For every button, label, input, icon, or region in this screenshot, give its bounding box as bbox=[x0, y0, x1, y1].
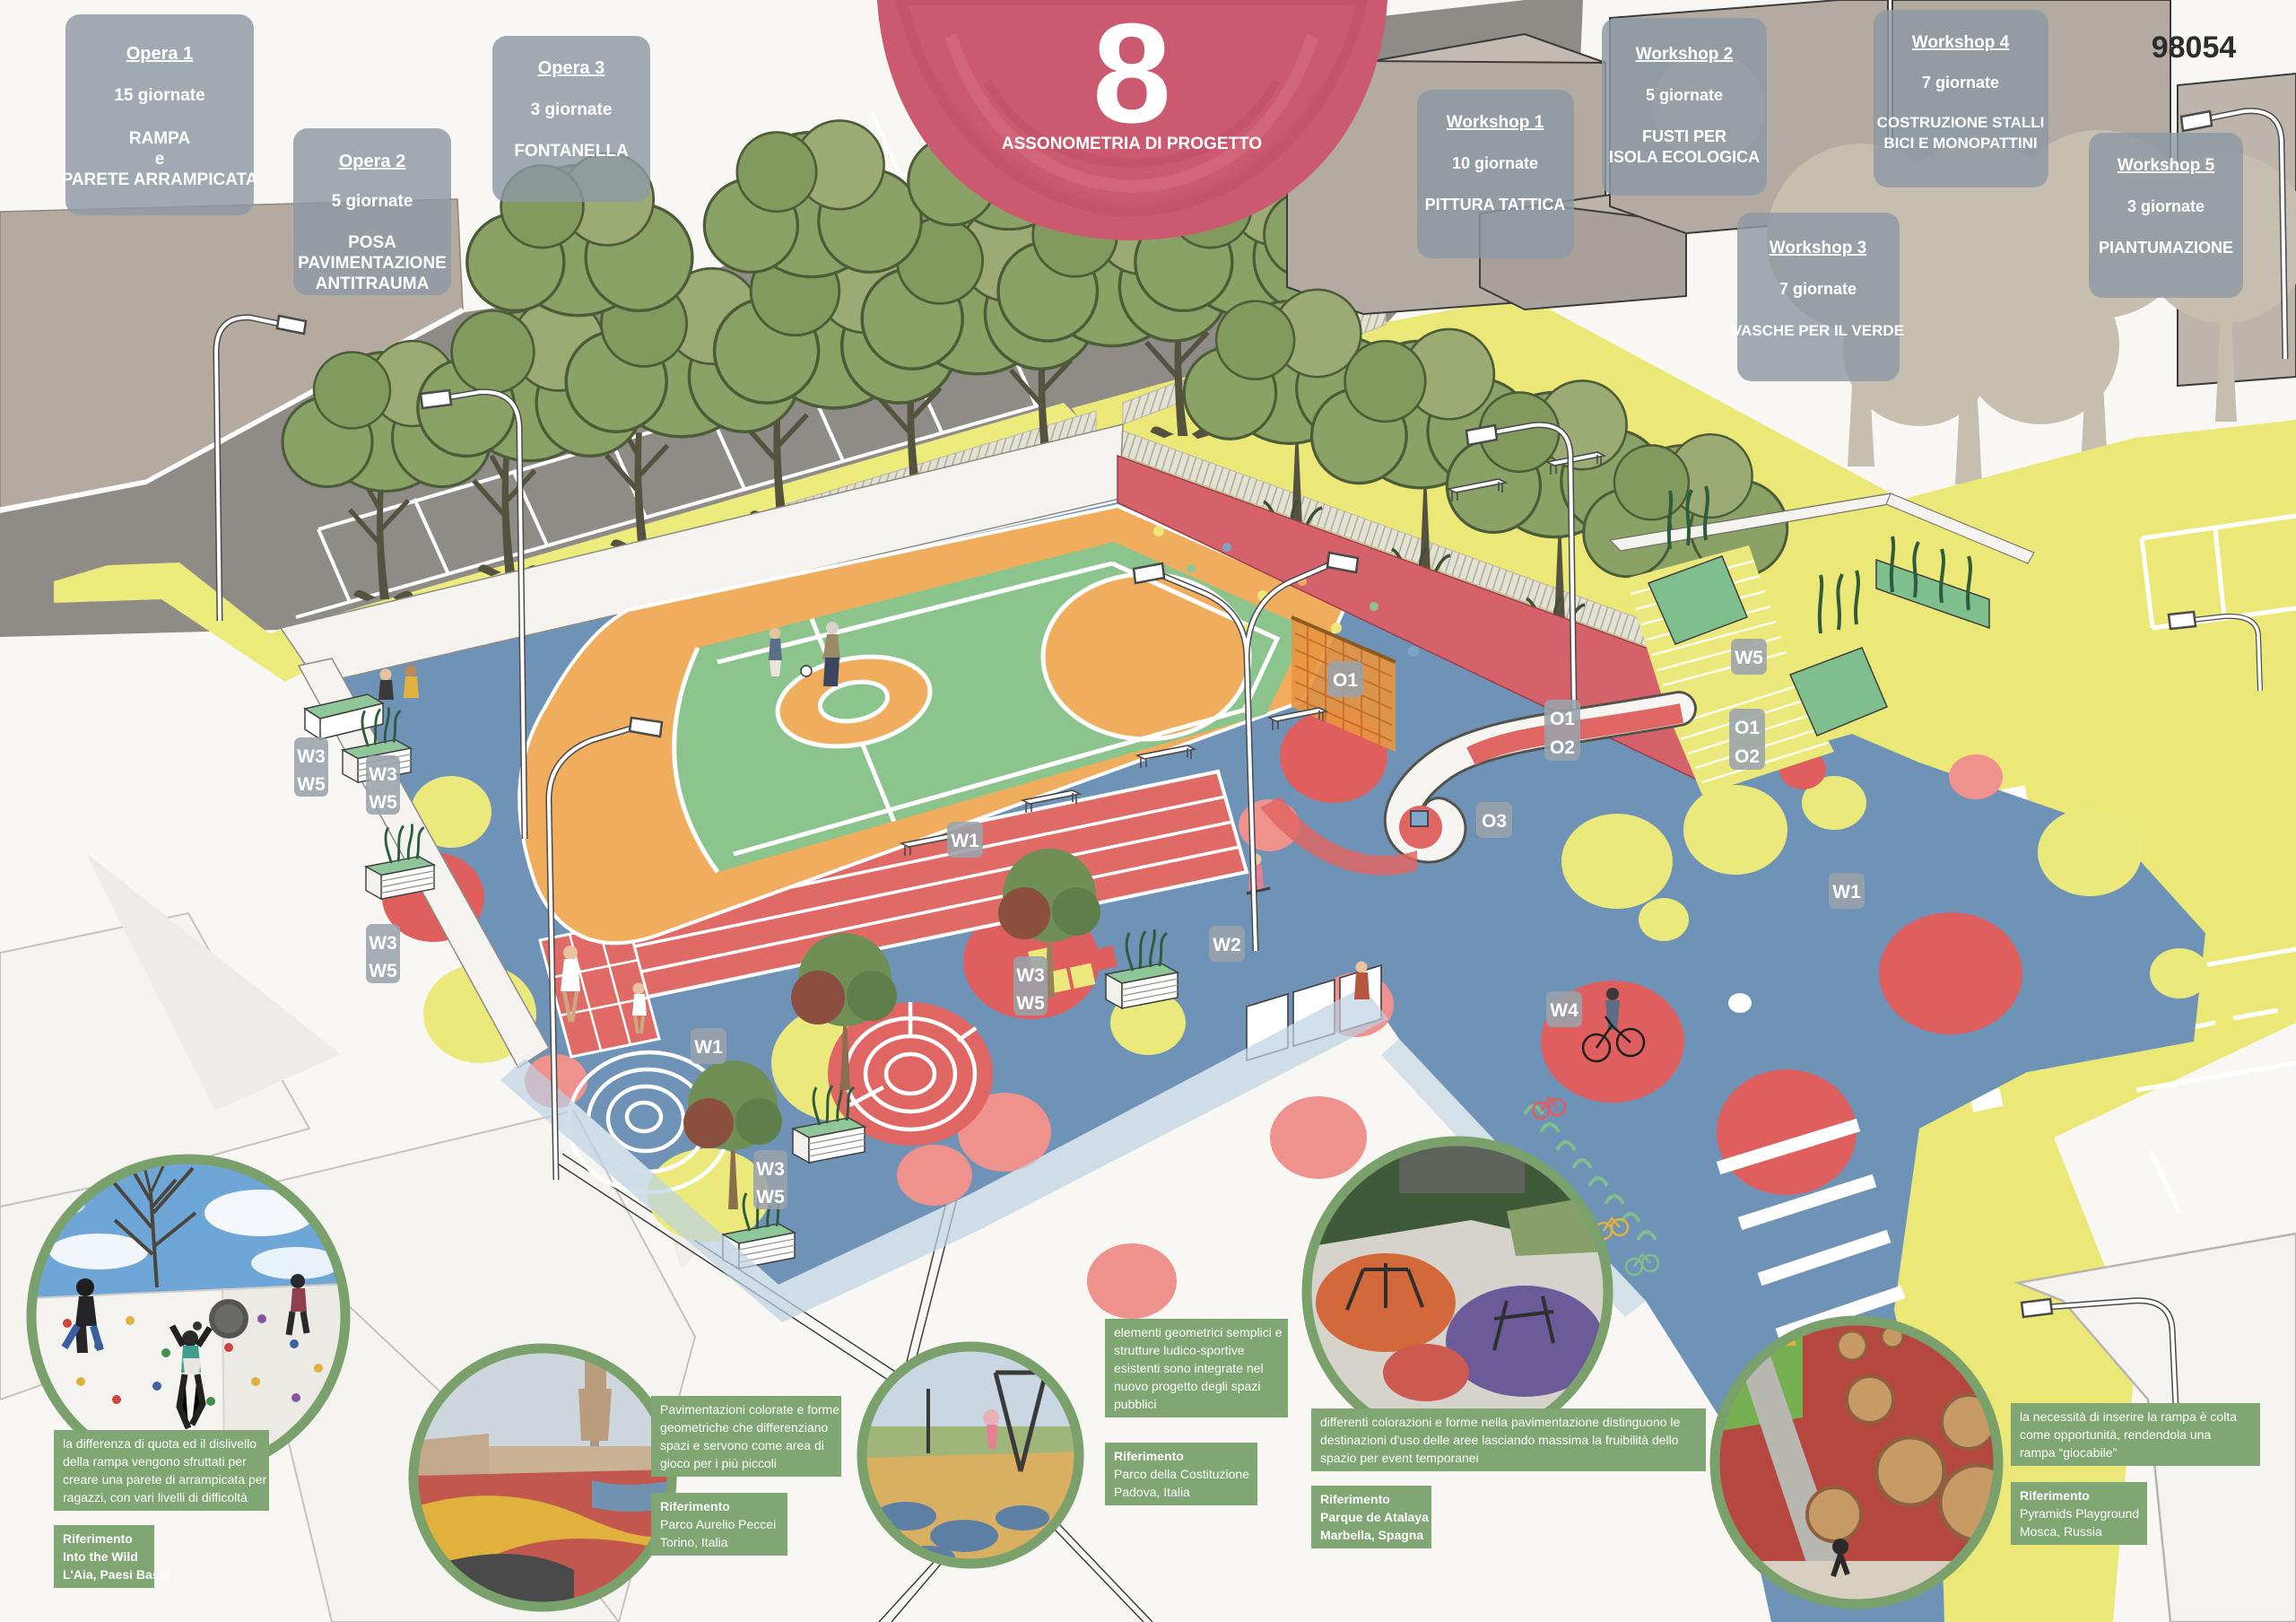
svg-text:W5: W5 bbox=[369, 792, 397, 813]
svg-text:5 giornate: 5 giornate bbox=[1646, 86, 1723, 104]
svg-text:3 giornate: 3 giornate bbox=[531, 100, 613, 119]
svg-text:Pavimentazioni colorate e form: Pavimentazioni colorate e forme bbox=[660, 1402, 839, 1417]
svg-text:W4: W4 bbox=[1550, 1000, 1578, 1021]
svg-text:rampa “giocabile”: rampa “giocabile” bbox=[2020, 1445, 2117, 1460]
svg-text:della rampa vengono sfruttati: della rampa vengono sfruttati per bbox=[63, 1454, 247, 1469]
svg-text:ISOLA ECOLOGICA: ISOLA ECOLOGICA bbox=[1609, 148, 1760, 166]
svg-text:pubblici: pubblici bbox=[1114, 1397, 1156, 1411]
svg-text:spazio per event temporanei: spazio per event temporanei bbox=[1320, 1451, 1479, 1465]
svg-text:O1: O1 bbox=[1735, 718, 1760, 738]
svg-text:Pyramids Playground: Pyramids Playground bbox=[2020, 1506, 2139, 1521]
svg-text:O3: O3 bbox=[1482, 811, 1507, 832]
svg-text:Workshop 4: Workshop 4 bbox=[1912, 33, 2010, 52]
svg-text:nuovo progetto degli spazi: nuovo progetto degli spazi bbox=[1114, 1379, 1260, 1393]
svg-text:Parco Aurelio Peccei: Parco Aurelio Peccei bbox=[660, 1517, 776, 1531]
svg-text:geometriche che differenziano: geometriche che differenziano bbox=[660, 1420, 829, 1435]
svg-text:Parque de Atalaya: Parque de Atalaya bbox=[1320, 1510, 1429, 1524]
svg-text:W1: W1 bbox=[951, 831, 979, 851]
svg-text:Opera 3: Opera 3 bbox=[538, 58, 604, 78]
svg-text:O2: O2 bbox=[1550, 737, 1575, 758]
svg-text:W1: W1 bbox=[1832, 882, 1861, 903]
svg-text:RAMPA: RAMPA bbox=[129, 129, 191, 148]
svg-text:ragazzi, con vari livelli di d: ragazzi, con vari livelli di difficoltà bbox=[63, 1490, 248, 1504]
svg-text:esistenti sono integrate nel: esistenti sono integrate nel bbox=[1114, 1361, 1264, 1375]
svg-text:come opportunità, rendendola u: come opportunità, rendendola una bbox=[2020, 1427, 2211, 1442]
svg-text:W5: W5 bbox=[1016, 993, 1045, 1014]
svg-text:la necessità di inserire la ra: la necessità di inserire la rampa è colt… bbox=[2020, 1409, 2237, 1424]
svg-text:Workshop 2: Workshop 2 bbox=[1636, 45, 1733, 64]
svg-text:98054: 98054 bbox=[2152, 31, 2237, 65]
svg-text:O1: O1 bbox=[1333, 670, 1358, 691]
svg-text:W5: W5 bbox=[1735, 648, 1763, 668]
svg-text:PIANTUMAZIONE: PIANTUMAZIONE bbox=[2099, 239, 2233, 257]
svg-text:elementi geometrici semplici e: elementi geometrici semplici e bbox=[1114, 1325, 1283, 1339]
svg-text:Riferimento: Riferimento bbox=[1320, 1492, 1390, 1506]
svg-text:L'Aia, Paesi Bassi: L'Aia, Paesi Bassi bbox=[63, 1567, 170, 1582]
svg-text:W3: W3 bbox=[297, 746, 326, 767]
svg-text:8: 8 bbox=[1092, 0, 1171, 153]
svg-text:Riferimento: Riferimento bbox=[63, 1531, 133, 1546]
svg-text:W5: W5 bbox=[297, 774, 326, 795]
svg-text:Parco della Costituzione: Parco della Costituzione bbox=[1114, 1467, 1249, 1481]
svg-text:W5: W5 bbox=[369, 961, 397, 981]
svg-text:Workshop 3: Workshop 3 bbox=[1770, 239, 1866, 257]
svg-text:15 giornate: 15 giornate bbox=[114, 86, 204, 105]
svg-text:W3: W3 bbox=[369, 933, 397, 954]
svg-text:W3: W3 bbox=[756, 1159, 785, 1180]
svg-text:e: e bbox=[155, 150, 165, 169]
svg-text:W5: W5 bbox=[756, 1187, 785, 1208]
svg-text:creare una parete di arrampica: creare una parete di arrampicata per bbox=[63, 1472, 267, 1487]
svg-text:Riferimento: Riferimento bbox=[2020, 1488, 2090, 1503]
svg-text:Riferimento: Riferimento bbox=[660, 1499, 730, 1513]
svg-text:FUSTI PER: FUSTI PER bbox=[1642, 127, 1726, 145]
svg-text:7 giornate: 7 giornate bbox=[1779, 280, 1857, 298]
svg-text:POSA: POSA bbox=[348, 233, 396, 252]
svg-text:W3: W3 bbox=[1016, 965, 1045, 986]
svg-text:FONTANELLA: FONTANELLA bbox=[514, 142, 629, 161]
svg-text:W3: W3 bbox=[369, 764, 397, 785]
svg-text:5 giornate: 5 giornate bbox=[332, 192, 413, 211]
svg-text:Opera 1: Opera 1 bbox=[126, 44, 193, 64]
svg-text:7 giornate: 7 giornate bbox=[1922, 74, 1999, 92]
svg-text:differenti colorazioni e forme: differenti colorazioni e forme nella pav… bbox=[1320, 1415, 1681, 1429]
svg-text:Opera 2: Opera 2 bbox=[339, 152, 405, 171]
svg-text:PITTURA TATTICA: PITTURA TATTICA bbox=[1425, 196, 1566, 214]
svg-text:W2: W2 bbox=[1213, 935, 1241, 955]
svg-text:Workshop 1: Workshop 1 bbox=[1447, 113, 1544, 132]
svg-text:Torino, Italia: Torino, Italia bbox=[660, 1535, 728, 1549]
svg-text:O2: O2 bbox=[1735, 746, 1760, 767]
svg-text:destinazioni d'uso delle aree: destinazioni d'uso delle aree lasciando … bbox=[1320, 1433, 1679, 1447]
svg-text:W1: W1 bbox=[694, 1037, 723, 1058]
svg-text:PAVIMENTAZIONE: PAVIMENTAZIONE bbox=[298, 254, 447, 273]
svg-text:BICI E MONOPATTINI: BICI E MONOPATTINI bbox=[1883, 135, 2037, 152]
svg-text:3 giornate: 3 giornate bbox=[2127, 197, 2205, 215]
svg-text:ASSONOMETRIA DI PROGETTO: ASSONOMETRIA DI PROGETTO bbox=[1002, 135, 1262, 153]
svg-text:ANTITRAUMA: ANTITRAUMA bbox=[316, 275, 430, 293]
svg-text:gioco per i più piccoli: gioco per i più piccoli bbox=[660, 1456, 777, 1470]
svg-text:Marbella, Spagna: Marbella, Spagna bbox=[1320, 1528, 1423, 1542]
svg-text:PARETE ARRAMPICATA: PARETE ARRAMPICATA bbox=[62, 170, 258, 189]
svg-text:10 giornate: 10 giornate bbox=[1452, 154, 1538, 172]
svg-text:Riferimento: Riferimento bbox=[1114, 1449, 1184, 1463]
svg-text:Mosca, Russia: Mosca, Russia bbox=[2020, 1524, 2102, 1539]
svg-text:Into the Wild: Into the Wild bbox=[63, 1549, 138, 1564]
svg-text:la differenza di quota ed il d: la differenza di quota ed il dislivello bbox=[63, 1436, 257, 1451]
svg-text:strutture ludico-sportive: strutture ludico-sportive bbox=[1114, 1343, 1245, 1357]
svg-text:spazi e servono come area di: spazi e servono come area di bbox=[660, 1438, 824, 1452]
svg-text:Workshop 5: Workshop 5 bbox=[2118, 156, 2215, 175]
svg-text:Padova, Italia: Padova, Italia bbox=[1114, 1485, 1190, 1499]
svg-text:VASCHE PER IL VERDE: VASCHE PER IL VERDE bbox=[1732, 322, 1904, 339]
svg-text:COSTRUZIONE STALLI: COSTRUZIONE STALLI bbox=[1877, 114, 2045, 131]
svg-text:O1: O1 bbox=[1550, 709, 1575, 729]
